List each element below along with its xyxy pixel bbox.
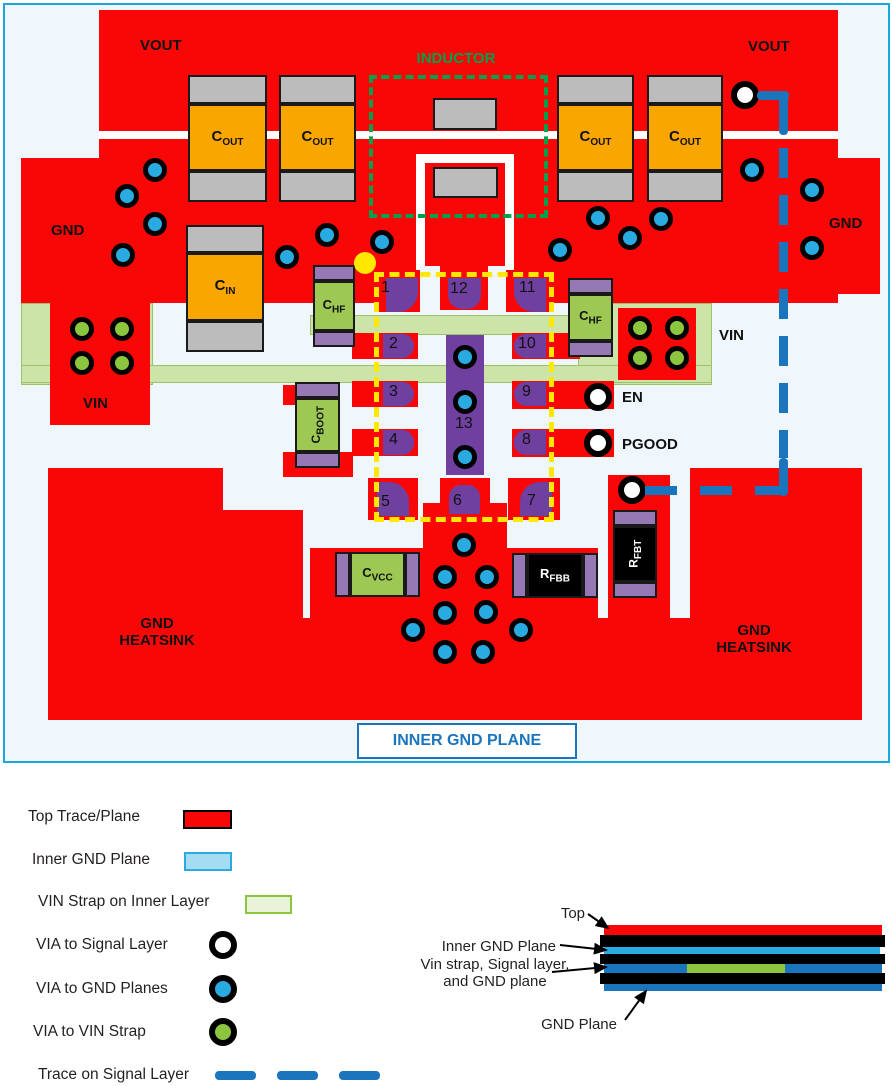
cap-terminal	[568, 278, 613, 294]
cap-body: CHF	[313, 281, 355, 331]
cout-capacitor-3: COUT	[557, 75, 634, 202]
gnd-heatsink-line1: GND	[684, 622, 824, 639]
cap-terminal	[188, 75, 267, 104]
gnd-label-right: GND	[829, 215, 862, 232]
cap-body: CBOOT	[295, 398, 340, 452]
chf-capacitor-right: CHF	[568, 278, 613, 357]
rfbt-label: RFBT	[626, 540, 643, 568]
gnd-via-icon	[143, 212, 167, 236]
gnd-heatsink-line1: GND	[87, 615, 227, 632]
gnd-via-icon	[275, 245, 299, 269]
chf-label: CHF	[579, 308, 602, 327]
vin-label-right: VIN	[719, 327, 744, 344]
arrow-vin-strap	[552, 967, 606, 972]
resistor-body: RFBB	[527, 553, 583, 598]
cin-label: CIN	[215, 277, 236, 297]
cboot-label: CBOOT	[309, 406, 326, 444]
vin-via-icon	[70, 317, 94, 341]
cap-body: COUT	[188, 104, 267, 171]
arrow-gnd-plane	[625, 991, 646, 1020]
gnd-via-icon	[548, 238, 572, 262]
legend-label: VIN Strap on Inner Layer	[38, 893, 209, 911]
cap-terminal	[647, 75, 723, 104]
plane-gap	[21, 138, 99, 158]
vin-via-icon	[665, 316, 689, 340]
signal-via-icon	[618, 476, 646, 504]
pin1-marker-dot	[354, 252, 376, 274]
cvcc-capacitor: CVCC	[335, 552, 420, 597]
signal-trace-horizontal	[645, 486, 788, 495]
gnd-via-icon	[315, 223, 339, 247]
cap-body: CIN	[186, 253, 264, 321]
cap-terminal	[647, 171, 723, 202]
signal-trace-segment	[779, 95, 788, 135]
gnd-via-icon	[401, 618, 425, 642]
cap-terminal	[405, 552, 420, 597]
cap-terminal	[188, 171, 267, 202]
stack-arrows	[540, 900, 670, 1040]
legend-label: VIA to VIN Strap	[33, 1023, 146, 1041]
signal-via-icon	[731, 81, 759, 109]
resistor-terminal	[512, 553, 527, 598]
rfbt-resistor: RFBT	[613, 510, 657, 598]
arrow-top	[588, 914, 608, 928]
cap-body: COUT	[557, 104, 634, 171]
vin-label-left: VIN	[83, 395, 108, 412]
signal-trace-dash	[277, 1071, 318, 1080]
signal-trace-dash	[215, 1071, 256, 1080]
signal-via-icon	[584, 429, 612, 457]
gnd-heatsink-label-left: GND HEATSINK	[87, 615, 227, 649]
top-trace-swatch	[183, 810, 232, 829]
cap-body: COUT	[647, 104, 723, 171]
gnd-via-icon	[209, 975, 237, 1003]
chf-label: CHF	[323, 297, 346, 316]
vin-via-icon	[665, 346, 689, 370]
gnd-via-icon	[474, 600, 498, 624]
cap-body: COUT	[279, 104, 356, 171]
cap-terminal	[279, 171, 356, 202]
inner-gnd-plane-callout: INNER GND PLANE	[357, 723, 577, 759]
gnd-via-icon	[433, 565, 457, 589]
signal-via-icon	[209, 931, 237, 959]
gnd-via-icon	[509, 618, 533, 642]
cap-terminal	[186, 321, 264, 352]
chf-capacitor-left: CHF	[313, 265, 355, 347]
cvcc-label: CVCC	[362, 565, 393, 584]
cap-terminal	[295, 382, 340, 398]
rfbb-resistor: RFBB	[512, 553, 598, 598]
gnd-via-icon	[800, 178, 824, 202]
cout-capacitor-4: COUT	[647, 75, 723, 202]
vin-strap-swatch	[245, 895, 292, 914]
legend-label: Trace on Signal Layer	[38, 1066, 189, 1084]
stack-vin-strap-segment	[687, 964, 785, 973]
gnd-via-icon	[143, 158, 167, 182]
gnd-label-left: GND	[51, 222, 84, 239]
gnd-heatsink-line2: HEATSINK	[87, 632, 227, 649]
cap-terminal	[279, 75, 356, 104]
gnd-via-icon	[115, 184, 139, 208]
cout-label: COUT	[669, 128, 701, 148]
gnd-via-icon	[586, 206, 610, 230]
cap-terminal	[295, 452, 340, 468]
gnd-via-icon	[618, 226, 642, 250]
resistor-terminal	[613, 510, 657, 526]
cap-terminal	[557, 75, 634, 104]
vin-via-icon	[110, 317, 134, 341]
vin-via-icon	[70, 351, 94, 375]
cap-terminal	[335, 552, 350, 597]
signal-via-icon	[584, 383, 612, 411]
cap-body: CVCC	[350, 552, 405, 597]
inductor-label: INDUCTOR	[386, 50, 526, 67]
rfbb-label: RFBB	[540, 566, 570, 585]
gnd-via-icon	[740, 158, 764, 182]
legend-label: VIA to Signal Layer	[36, 936, 168, 954]
cout-label: COUT	[302, 128, 334, 148]
gnd-via-icon	[471, 640, 495, 664]
cap-terminal	[313, 265, 355, 281]
cout-capacitor-1: COUT	[188, 75, 267, 202]
cout-capacitor-2: COUT	[279, 75, 356, 202]
cap-terminal	[568, 341, 613, 357]
stack-inner-gnd-label: Inner GND Plane	[416, 938, 556, 955]
signal-trace-dash	[339, 1071, 380, 1080]
gnd-via-icon	[433, 601, 457, 625]
cout-label: COUT	[212, 128, 244, 148]
inner-gnd-swatch	[184, 852, 232, 871]
vin-via-icon	[110, 351, 134, 375]
gnd-heatsink-line2: HEATSINK	[684, 639, 824, 656]
resistor-terminal	[583, 553, 598, 598]
inductor-outline	[369, 75, 548, 218]
gnd-via-icon	[800, 236, 824, 260]
legend-label: Top Trace/Plane	[28, 808, 140, 826]
gnd-via-icon	[111, 243, 135, 267]
cout-label: COUT	[580, 128, 612, 148]
pcb-layout-figure: COUT COUT COUT COUT CIN CHF CHF	[0, 0, 893, 1086]
gnd-via-icon	[475, 565, 499, 589]
cap-terminal	[313, 331, 355, 347]
legend-label: VIA to GND Planes	[36, 980, 168, 998]
pgood-label: PGOOD	[622, 436, 678, 453]
en-label: EN	[622, 389, 643, 406]
gnd-via-icon	[433, 640, 457, 664]
arrow-inner-gnd	[560, 945, 606, 950]
vin-via-icon	[628, 316, 652, 340]
gnd-via-icon	[649, 207, 673, 231]
vin-via-icon	[628, 346, 652, 370]
cboot-capacitor: CBOOT	[295, 382, 340, 468]
gnd-heatsink-label-right: GND HEATSINK	[684, 622, 824, 656]
vin-via-icon	[209, 1018, 237, 1046]
cap-terminal	[557, 171, 634, 202]
cap-body: CHF	[568, 294, 613, 341]
vout-label-left: VOUT	[140, 37, 182, 54]
resistor-terminal	[613, 582, 657, 598]
gnd-via-icon	[452, 533, 476, 557]
gnd-via-icon	[370, 230, 394, 254]
vout-label-right: VOUT	[748, 38, 790, 55]
cin-capacitor: CIN	[186, 225, 264, 352]
signal-trace-vertical	[779, 148, 788, 458]
cap-terminal	[186, 225, 264, 253]
resistor-body: RFBT	[613, 526, 657, 582]
ic-outline	[374, 272, 554, 522]
legend-label: Inner GND Plane	[32, 851, 150, 869]
